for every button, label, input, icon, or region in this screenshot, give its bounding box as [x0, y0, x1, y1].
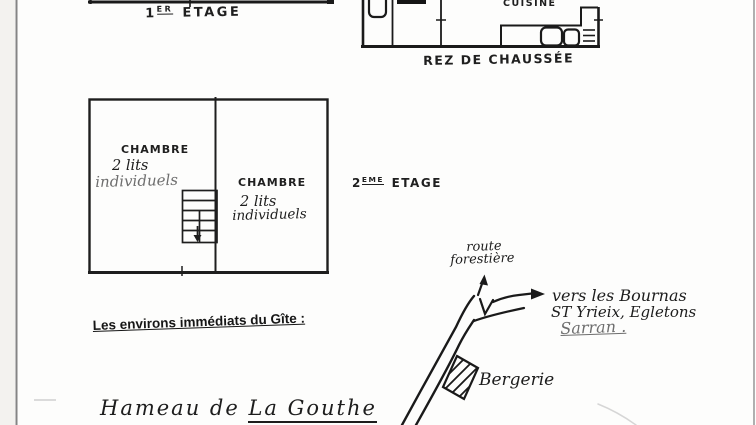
floor-number: 2 [352, 176, 362, 190]
floor-ordinal-suffix: ER [157, 5, 174, 15]
road-right-edge [416, 320, 474, 425]
sink-symbol [564, 30, 579, 46]
floor-ordinal-suffix: EME [362, 175, 384, 185]
forest-road-arrowhead [480, 275, 489, 286]
faint-road-trace [598, 404, 636, 425]
illegible-cutoff-label [397, 0, 426, 4]
hamlet-caption: Hameau de La Gouthe [100, 396, 377, 420]
forest-road-label-line2: forestière [450, 251, 515, 268]
scan-left-margin [0, 0, 15, 425]
plan-drawing-layer [0, 0, 756, 425]
sink-symbol [541, 28, 562, 46]
village-road-arrowhead [531, 289, 545, 300]
scanned-gite-plan-page: 1ER ETAGE CUISINE REZ DE CHAUSSÉE CHAMBR… [0, 0, 756, 425]
ground-floor-plan-fragment [361, 0, 603, 47]
bedroom-right-beds-type: individuels [232, 206, 307, 224]
floor-word: ETAGE [182, 5, 241, 21]
door-symbol [369, 0, 386, 17]
floor-number: 1 [145, 6, 157, 21]
hamlet-name: La Gouthe [248, 396, 376, 423]
bedroom-left-label: CHAMBRE [121, 143, 189, 156]
radiator-symbol [583, 30, 595, 41]
bedroom-left-beds-type: individuels [95, 171, 178, 191]
first-floor-caption: 1ER ETAGE [145, 3, 241, 21]
village-road-upper-edge [493, 294, 532, 303]
kitchen-room-label: CUISINE [503, 0, 557, 9]
ground-floor-caption: REZ DE CHAUSSÉE [423, 50, 574, 68]
hamlet-prefix: Hameau de [100, 396, 240, 420]
floor-word: ETAGE [392, 176, 442, 190]
bergerie-label: Bergerie [479, 370, 554, 390]
village-road-lower-edge [474, 308, 524, 321]
second-floor-caption: 2EME ETAGE [352, 175, 442, 190]
destinations-line3-sarran: Sarran . [560, 317, 626, 338]
staircase-symbol [183, 191, 218, 243]
road-fork [480, 299, 493, 314]
bedroom-right-label: CHAMBRE [238, 176, 306, 189]
